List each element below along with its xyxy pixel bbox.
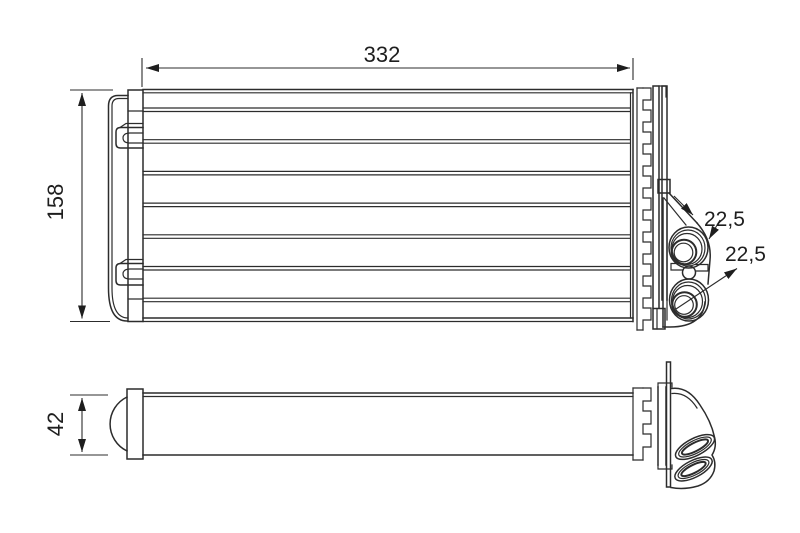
side-body bbox=[143, 393, 633, 455]
pipe-diameter-bottom-label: 22,5 bbox=[725, 243, 766, 266]
pipe-diameter-dimension-top: 22,5 bbox=[674, 196, 745, 239]
side-view bbox=[110, 362, 718, 488]
left-tank bbox=[109, 90, 144, 322]
depth-dimension-label: 42 bbox=[43, 412, 68, 436]
mounting-clip-upper bbox=[116, 124, 143, 149]
inlet-pipe bbox=[669, 227, 708, 268]
side-mounting-plate bbox=[658, 362, 672, 487]
tube-rows bbox=[143, 108, 630, 302]
height-dimension-label: 158 bbox=[43, 184, 68, 221]
pipe-bracket bbox=[671, 264, 708, 280]
pipe-diameter-top-label: 22,5 bbox=[704, 208, 745, 231]
mounting-clip-lower bbox=[116, 260, 143, 286]
pipe-diameter-dimension-bottom: 22,5 bbox=[676, 243, 766, 309]
heat-exchanger-drawing: 332 158 22,5 22,5 42 bbox=[0, 0, 800, 533]
width-dimension: 332 bbox=[142, 42, 633, 87]
technical-drawing-canvas: 332 158 22,5 22,5 42 bbox=[0, 0, 800, 533]
core-matrix bbox=[143, 90, 633, 322]
serrated-side-plate bbox=[637, 88, 651, 330]
side-left-flange bbox=[110, 389, 143, 459]
side-cowl bbox=[671, 388, 718, 488]
front-view bbox=[109, 86, 711, 330]
height-dimension: 158 bbox=[43, 90, 113, 322]
side-serrated-plate bbox=[633, 388, 651, 460]
depth-dimension: 42 bbox=[43, 395, 108, 455]
width-dimension-label: 332 bbox=[364, 42, 401, 67]
